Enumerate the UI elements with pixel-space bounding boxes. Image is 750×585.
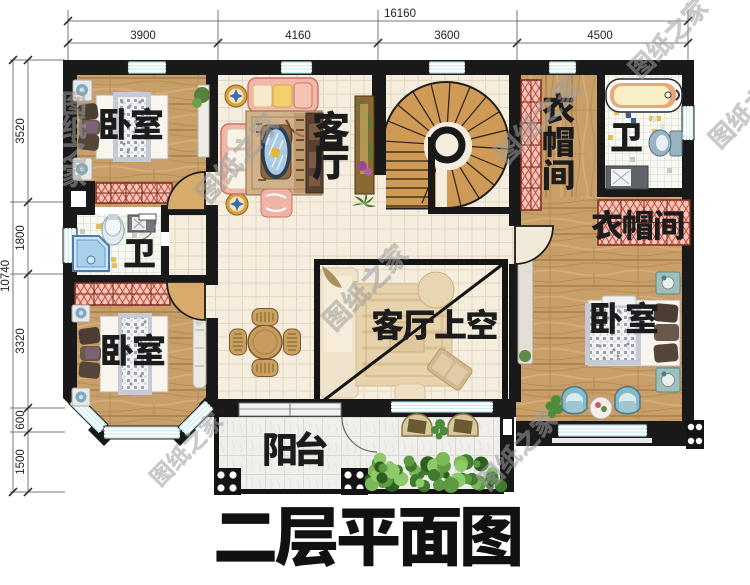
svg-text:10740: 10740 bbox=[0, 260, 12, 292]
svg-text:1500: 1500 bbox=[15, 449, 27, 475]
svg-text:3600: 3600 bbox=[434, 30, 460, 42]
svg-text:4160: 4160 bbox=[285, 30, 311, 42]
svg-text:3900: 3900 bbox=[130, 30, 156, 42]
svg-text:1800: 1800 bbox=[15, 225, 27, 251]
svg-text:3520: 3520 bbox=[15, 118, 27, 144]
svg-text:600: 600 bbox=[15, 410, 27, 429]
svg-text:16160: 16160 bbox=[384, 8, 416, 20]
svg-text:3320: 3320 bbox=[15, 328, 27, 354]
svg-text:4500: 4500 bbox=[587, 30, 613, 42]
